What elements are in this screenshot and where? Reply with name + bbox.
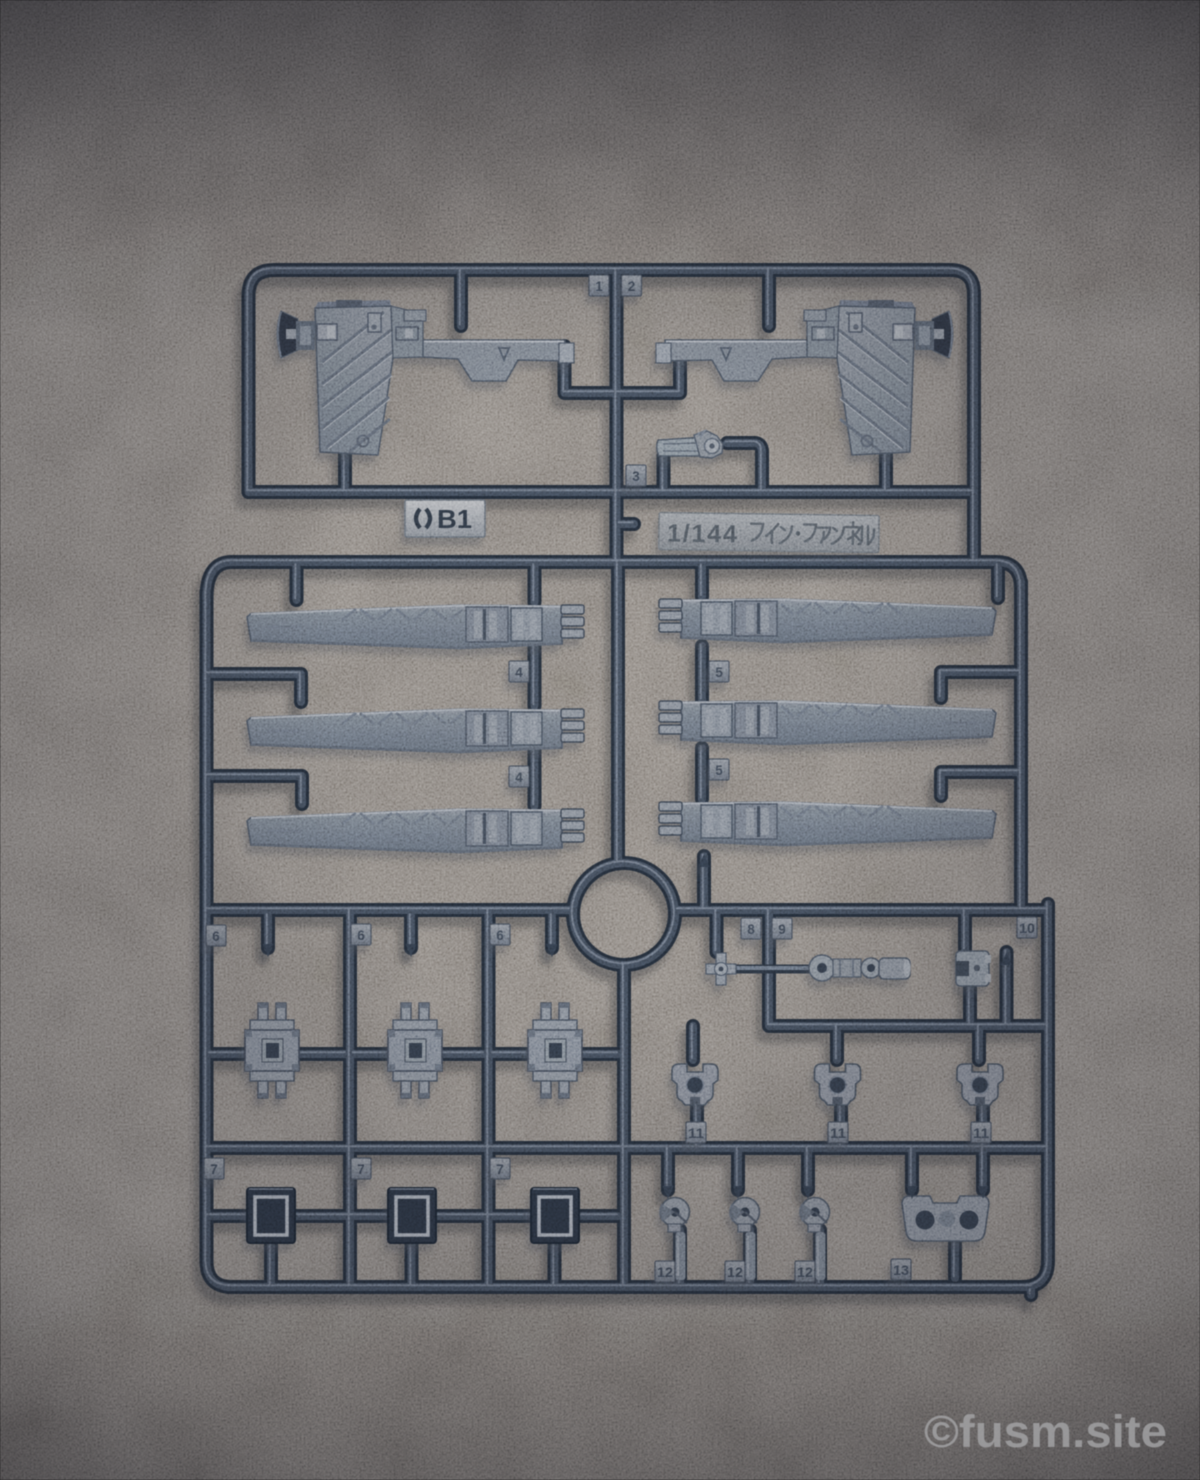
svg-text:©fusm.site: ©fusm.site <box>924 1406 1167 1457</box>
